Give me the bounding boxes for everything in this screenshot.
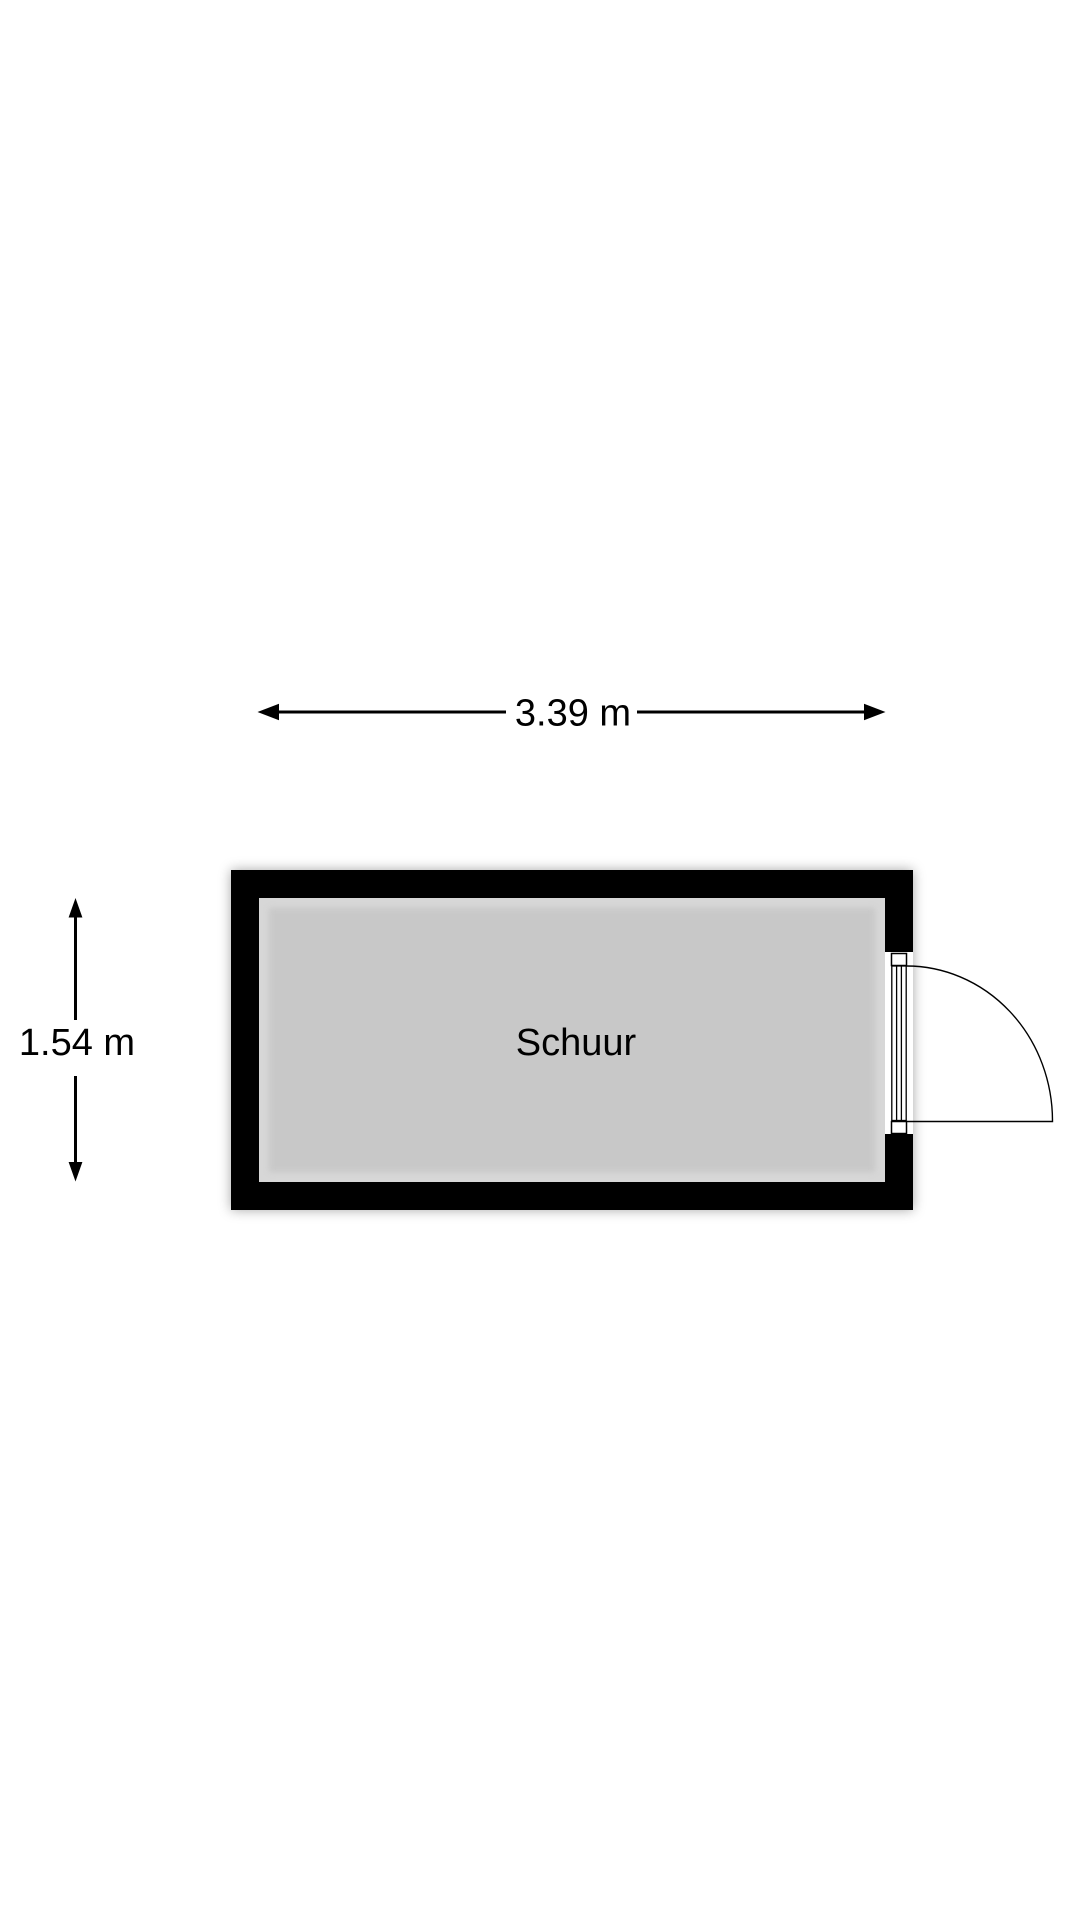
svg-text:Schuur: Schuur: [516, 1022, 637, 1064]
svg-text:1.54 m: 1.54 m: [19, 1022, 135, 1064]
svg-text:3.39 m: 3.39 m: [515, 693, 631, 735]
